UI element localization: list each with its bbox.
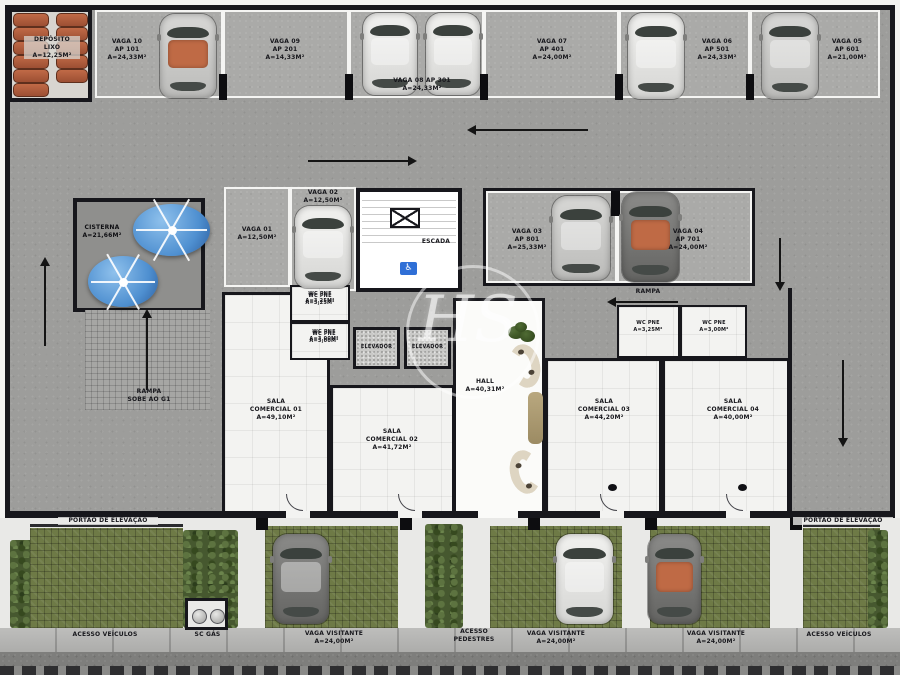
vaga05-label: VAGA 05 AP 601 A=21,00m² [818, 38, 876, 61]
door-gap [398, 511, 422, 518]
wall-stub [345, 74, 353, 100]
sala02-label: SALA COMERCIAL 02 A=41,72m² [350, 428, 434, 451]
room-sala-comercial-04 [662, 358, 790, 516]
door-knob [738, 484, 747, 491]
escada-label: ESCADA [414, 238, 458, 246]
door-knob [608, 484, 617, 491]
circulation-arrow-left [476, 129, 588, 131]
wall-stub [611, 191, 620, 216]
acesso-veiculos-left-label: ACESSO VEÍCULOS [62, 631, 148, 639]
wc-pne-4-label: WC PNE A=3,00m² [690, 320, 738, 333]
portao-right-label: PORTÃO DE ELEVAÇÃO [793, 517, 893, 525]
rampa-sobe-label: RAMPA SOBE AO G1 [118, 388, 180, 404]
deposito-label: DEPÓSITO LIXO A=12,25m² [24, 36, 80, 59]
vaga04-label: VAGA 04 AP 701 A=24,00m² [664, 228, 712, 251]
sc-gas-label: SC GÁS [185, 631, 230, 639]
wall-stub [480, 74, 488, 100]
door-gap [286, 511, 310, 518]
wall-stub [219, 74, 227, 100]
vaga08-label: VAGA 08 AP 301 A=24,33m² [366, 77, 478, 93]
ramp-sobe-arrow [146, 318, 148, 390]
street-gutter [0, 666, 900, 675]
portao-left-label: PORTÃO DE ELEVAÇÃO [58, 517, 158, 525]
car-visitante-1 [273, 534, 329, 624]
vaga06-label: VAGA 06 AP 501 A=24,33m² [687, 38, 747, 61]
trash-bin [56, 13, 88, 27]
circulation-arrow-right [308, 160, 408, 162]
sala01-label: SALA COMERCIAL 01 A=49,10m² [234, 398, 318, 421]
wall-stub [528, 518, 540, 530]
vegetation-pedestrian [425, 524, 463, 628]
door-gap [478, 511, 518, 518]
door-gap [726, 511, 750, 518]
car-vaga10 [160, 14, 216, 98]
wall-stub [400, 518, 412, 530]
wall-stub [746, 74, 754, 100]
rampa-label: RAMPA [628, 288, 668, 296]
visitante-1-label: VAGA VISITANTE A=24,00m² [296, 630, 372, 646]
sala04-label: SALA COMERCIAL 04 A=40,00m² [690, 398, 776, 421]
acesso-veiculos-right-label: ACESSO VEÍCULOS [796, 631, 882, 639]
elevador-2-label: ELEVADOR [405, 344, 450, 351]
trash-bin [13, 69, 49, 83]
hall-label: HALL A=40,31m² [462, 378, 508, 394]
ramp-up-arrow [44, 266, 46, 346]
car-visitante-2 [556, 534, 613, 624]
vaga09-label: VAGA 09 AP 201 A=14,33m² [254, 38, 316, 61]
driveway-left [30, 528, 183, 628]
vegetation [868, 530, 888, 628]
water-tank [88, 256, 158, 307]
elevador-1-label: ELEVADOR [354, 344, 399, 351]
visitante-2-label: VAGA VISITANTE A=24,00m² [518, 630, 594, 646]
cisterna-label: CISTERNA A=21,66m² [76, 224, 128, 240]
door-gap [600, 511, 624, 518]
stair-void [390, 208, 420, 228]
wall-stub [256, 518, 268, 530]
wall-stub [645, 518, 657, 530]
vaga07-label: VAGA 07 AP 401 A=24,00m² [518, 38, 586, 61]
car-vaga05 [762, 13, 818, 99]
car-vaga03 [552, 196, 610, 280]
wc-pne-1-label: WC PNE A=3,25m² [296, 291, 344, 304]
trash-bin [13, 13, 49, 27]
accessible-icon: ♿ [400, 262, 417, 275]
wc-pne-3-label: WC PNE A=3,25m² [624, 320, 672, 333]
wc-pne-2-label: WC PNE A=3,00m² [300, 329, 348, 342]
vaga02-label: VAGA 02 A=12,50m² [294, 189, 352, 205]
car-visitante-3 [648, 534, 701, 624]
trash-bin [56, 69, 88, 83]
ramp-down-arrow [779, 238, 781, 282]
visitante-3-label: VAGA VISITANTE A=24,00m² [678, 630, 754, 646]
plant [515, 322, 527, 332]
ramp-down-arrow [842, 360, 844, 438]
car-vaga06 [628, 13, 684, 99]
sala03-label: SALA COMERCIAL 03 A=44,20m² [561, 398, 647, 421]
acesso-pedestres-label: ACESSO PEDESTRES [448, 628, 500, 644]
wall-stub [615, 74, 623, 100]
car-vaga02 [295, 206, 351, 288]
vaga01-label: VAGA 01 A=12,50m² [228, 226, 286, 242]
vaga03-label: VAGA 03 AP 801 A=25,33m² [503, 228, 551, 251]
vaga10-label: VAGA 10 AP 101 A=24,33m² [98, 38, 156, 61]
floor-plan: DEPÓSITO LIXO A=12,25m² VAGA 10 AP 101 A… [0, 0, 900, 675]
trash-bin [13, 83, 49, 97]
rampa-arrow [616, 301, 678, 303]
gas-shelter [185, 598, 228, 630]
bench [528, 392, 543, 444]
room-sala-comercial-03 [545, 358, 662, 516]
water-tank [133, 204, 210, 256]
